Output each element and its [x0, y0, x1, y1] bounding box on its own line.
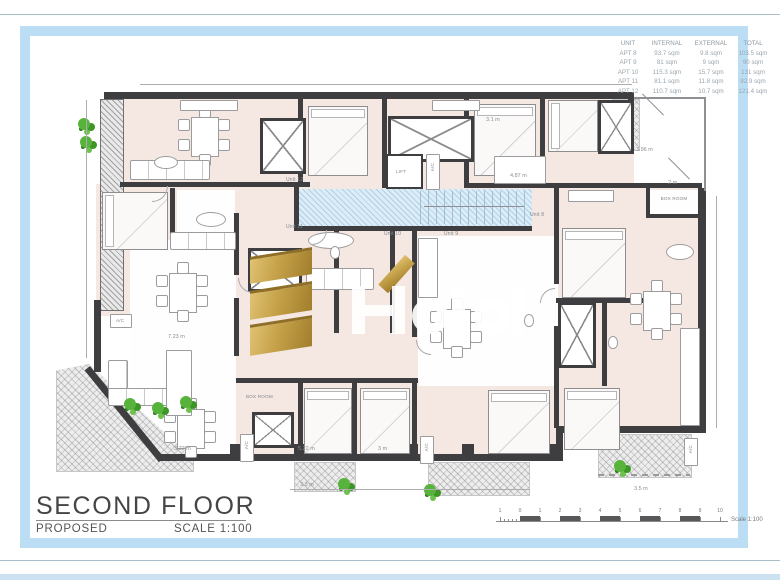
- kitchen-counter: [418, 238, 438, 298]
- wall-segment: [602, 302, 607, 386]
- scale-bar-label: 1: [495, 508, 505, 514]
- dimension-line: [290, 489, 530, 490]
- dimension-label: 5.22 m: [298, 446, 315, 452]
- plant: [152, 402, 164, 414]
- area-table-cell: APT 10: [612, 69, 644, 77]
- wall-segment: [232, 454, 562, 461]
- area-table-cell: 81.1 sqm: [644, 78, 690, 86]
- ac-label: A/C: [424, 443, 429, 451]
- side-table: [196, 212, 226, 227]
- side-table: [154, 156, 178, 169]
- ac-label: A/C: [430, 163, 435, 171]
- bed-pillow: [551, 103, 560, 149]
- drawing-status: PROPOSED: [36, 523, 108, 535]
- lift-shaft: LIFT: [386, 154, 423, 189]
- chair: [156, 295, 168, 307]
- area-table-cell: 11.8 sqm: [690, 78, 732, 86]
- ac-label: A/C: [244, 441, 249, 449]
- area-table-cell: 9.8 sqm: [690, 50, 732, 58]
- unit-label-10: Unit 10: [384, 231, 401, 237]
- chair: [670, 313, 682, 325]
- scale-bar-line: [496, 521, 728, 522]
- dimension-label: 4.87 m: [510, 173, 527, 179]
- area-table-cell: 131 sqm: [732, 69, 774, 77]
- scale-bar-tick: [620, 517, 621, 522]
- watermark-text-shape: [363, 305, 393, 316]
- parapet-line: [634, 97, 706, 99]
- chair: [218, 139, 230, 151]
- unit-label-9: Unit 9: [444, 231, 458, 237]
- scale-bar-tick: [580, 517, 581, 522]
- chair: [651, 328, 663, 340]
- area-table-header: EXTERNAL: [690, 40, 732, 48]
- bed-pillow: [491, 393, 547, 402]
- lift-label: LIFT: [396, 169, 406, 174]
- area-table-cell: APT 9: [612, 59, 644, 67]
- bed: [304, 388, 352, 454]
- dimension-label: 3.22 m: [174, 446, 191, 452]
- watermark-text-shape: [452, 286, 465, 334]
- scale-bar-tick: [660, 517, 661, 522]
- dimension-label: 2 m: [668, 180, 677, 186]
- dining-set: [178, 106, 230, 166]
- bed: [360, 388, 410, 454]
- area-table-cell: 81 sqm: [644, 59, 690, 67]
- scale-bar-tick: [504, 519, 505, 522]
- toilet: [330, 246, 340, 259]
- scale-bar-segment: [520, 516, 540, 521]
- chair: [451, 346, 463, 358]
- bed-pillow: [363, 391, 407, 400]
- area-table-cell: APT 8: [612, 50, 644, 58]
- wall-segment: [554, 184, 559, 284]
- bed-pillow: [565, 231, 623, 240]
- chair: [204, 411, 216, 423]
- drawing-sheet: { "title_block": { "title": "SECOND FLOO…: [0, 0, 780, 580]
- shaft-cross: [252, 412, 294, 448]
- bed: [548, 100, 598, 152]
- scale-bar-label: 5: [615, 508, 625, 514]
- area-table-cell: 110.7 sqm: [644, 88, 690, 96]
- dining-table: [169, 273, 197, 313]
- plant: [424, 484, 436, 496]
- area-table-cell: 115.3 sqm: [644, 69, 690, 77]
- area-table-cell: 9 sqm: [690, 59, 732, 67]
- chair: [164, 431, 176, 443]
- sheet-border-line-bottom: [0, 560, 780, 561]
- chair: [470, 331, 482, 343]
- bed-pillow: [477, 107, 533, 116]
- area-table-cell: 92.9 sqm: [732, 78, 774, 86]
- area-table-cell: 15.7 sqm: [690, 69, 732, 77]
- area-table-cell: 90 sqm: [732, 59, 774, 67]
- dining-set: [630, 280, 682, 340]
- scale-bar-label: 3: [575, 508, 585, 514]
- area-table-cell: 93.7 sqm: [644, 50, 690, 58]
- area-table-cell: 103.5 sqm: [732, 50, 774, 58]
- area-table-cell: 121.4 sqm: [732, 88, 774, 96]
- wall-segment: [558, 183, 702, 188]
- scale-bar-label: 6: [635, 508, 645, 514]
- shaft-cross: [260, 118, 306, 174]
- scale-bar-label: 4: [595, 508, 605, 514]
- chair: [178, 139, 190, 151]
- chair: [196, 275, 208, 287]
- wall-segment: [646, 214, 700, 218]
- dimension-label: 3.96 m: [636, 147, 653, 153]
- scale-bar-label: 8: [675, 508, 685, 514]
- chair: [651, 280, 663, 292]
- wall-segment: [104, 92, 634, 99]
- parapet-line: [704, 97, 706, 191]
- shaft-cross: [558, 302, 596, 368]
- title-underline: [36, 520, 246, 521]
- dimension-line: [716, 196, 717, 428]
- sofa: [170, 232, 236, 250]
- scale-bar-tick: [540, 517, 541, 522]
- scale-bar-label: 7: [655, 508, 665, 514]
- scale-bar-segment: [680, 516, 700, 521]
- bed: [564, 388, 620, 450]
- watermark-text-shape: [392, 286, 405, 334]
- chair: [630, 293, 642, 305]
- wall-segment: [94, 300, 101, 372]
- bed: [562, 228, 626, 298]
- kitchen-counter: [494, 156, 546, 184]
- scale-bar-tick: [516, 519, 517, 522]
- area-table-cell: APT 12: [612, 88, 644, 96]
- paved-terrace: [428, 462, 530, 496]
- sheet-border-line-top: [0, 14, 780, 15]
- scale-bar-label: 1: [535, 508, 545, 514]
- ac-niche: A/C: [110, 314, 132, 328]
- area-table-header: TOTAL: [732, 40, 774, 48]
- stair-direction-line: [424, 206, 524, 207]
- plant: [78, 118, 90, 130]
- ac-niche: A/C: [420, 436, 434, 464]
- kitchen-counter: [680, 328, 700, 426]
- ac-label: A/C: [116, 318, 124, 323]
- chair: [204, 431, 216, 443]
- scale-bar-caption: Scale 1:100: [731, 517, 763, 523]
- area-table: UNIT INTERNAL EXTERNAL TOTAL APT 8 93.7 …: [612, 40, 774, 96]
- chair: [177, 262, 189, 274]
- plant: [124, 398, 136, 410]
- wall-segment: [120, 182, 310, 187]
- bed-pillow: [567, 391, 617, 400]
- plant: [180, 396, 192, 408]
- scale-bar-tick: [512, 519, 513, 522]
- chair: [178, 119, 190, 131]
- wall-segment: [646, 184, 650, 218]
- scale-bar-tick: [508, 519, 509, 522]
- wall-segment: [236, 378, 418, 383]
- area-table-header: INTERNAL: [644, 40, 690, 48]
- dimension-label: 3.5 m: [634, 486, 648, 492]
- wall-segment: [352, 383, 357, 457]
- scale-bar-segment: [560, 516, 580, 521]
- chair: [670, 293, 682, 305]
- toilet: [524, 314, 534, 327]
- box-room-label: BOX ROOM: [246, 394, 273, 399]
- wall-pier: [550, 444, 562, 456]
- chair: [196, 295, 208, 307]
- scale-bar-tick: [500, 517, 501, 522]
- dining-set: [156, 262, 208, 322]
- sideboard: [180, 100, 238, 111]
- ac-niche: A/C: [684, 438, 698, 466]
- area-table-cell: APT 11: [612, 78, 644, 86]
- ac-niche: A/C: [426, 154, 440, 190]
- scale-bar-segment: [600, 516, 620, 521]
- chair: [630, 313, 642, 325]
- toilet: [608, 336, 618, 349]
- scale-bar-segment: [640, 516, 660, 521]
- chair: [218, 119, 230, 131]
- chair: [177, 310, 189, 322]
- scale-bar-tick: [700, 517, 701, 522]
- next-sheet-edge: [0, 574, 780, 580]
- dimension-label: 7.23 m: [168, 334, 185, 340]
- box-room-label: BOX ROOM: [652, 196, 696, 201]
- unit-label-8: Unit 8: [530, 212, 544, 218]
- bed-pillow: [105, 195, 114, 247]
- drawing-title: SECOND FLOOR: [36, 492, 255, 521]
- scale-bar-label: 9: [695, 508, 705, 514]
- dimension-line: [140, 84, 632, 85]
- terrace-dashed-edge: [598, 474, 690, 476]
- dining-table: [191, 117, 219, 157]
- bed-pillow: [311, 109, 365, 118]
- side-table: [666, 244, 694, 260]
- chair: [156, 275, 168, 287]
- dining-table: [643, 291, 671, 331]
- bed: [488, 390, 550, 454]
- unit-label-11: Unit 11: [286, 224, 303, 230]
- scale-bar-tick: [720, 517, 721, 522]
- watermark-text-shape: [412, 298, 448, 334]
- scale-bar-label: 0: [515, 508, 525, 514]
- bed: [308, 106, 368, 176]
- plant: [614, 460, 626, 472]
- watermark-text-shape: [512, 286, 524, 334]
- area-table-header: UNIT: [612, 40, 644, 48]
- area-table-cell: 10.7 sqm: [690, 88, 732, 96]
- sideboard: [432, 100, 480, 111]
- ac-label: A/C: [688, 445, 693, 453]
- wall-pier: [462, 444, 474, 456]
- unit-label-12: Unit 12: [286, 177, 303, 183]
- stair-treads: [420, 191, 530, 224]
- scale-bar-label: 2: [555, 508, 565, 514]
- bed-pillow: [307, 391, 349, 400]
- wall-segment: [234, 298, 239, 356]
- dimension-label: 3.1 m: [486, 117, 500, 123]
- dimension-label: 3 m: [378, 446, 387, 452]
- scale-bar-label: 10: [715, 508, 725, 514]
- ac-niche: A/C: [240, 434, 254, 462]
- shaft-cross: [598, 100, 634, 154]
- drawing-scale: SCALE 1:100: [174, 523, 253, 535]
- dimension-line: [86, 100, 87, 358]
- watermark-text-shape: [474, 298, 510, 334]
- room-fill-white: [650, 190, 698, 214]
- sideboard: [568, 190, 614, 202]
- dimension-label: 3.3 m: [300, 482, 314, 488]
